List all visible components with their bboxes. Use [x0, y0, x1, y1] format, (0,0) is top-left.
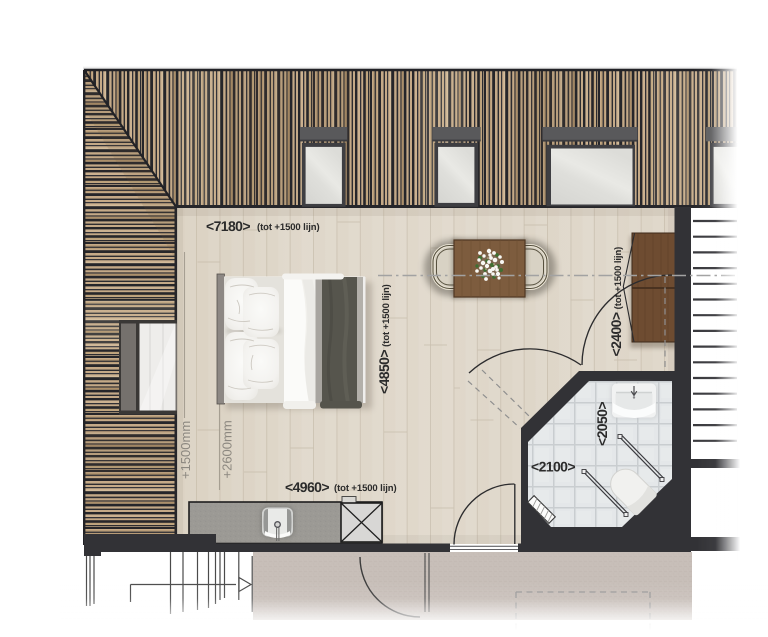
svg-text:<2050>: <2050> — [594, 402, 610, 446]
svg-text:<2100>: <2100> — [531, 459, 575, 475]
svg-text:<7180>: <7180> — [206, 218, 250, 234]
svg-text:(tot +1500 lijn): (tot +1500 lijn) — [334, 483, 397, 494]
svg-text:+2600mm: +2600mm — [220, 420, 235, 478]
svg-text:+1500mm: +1500mm — [178, 421, 193, 479]
svg-text:(tot +1500 lijn): (tot +1500 lijn) — [257, 222, 320, 233]
svg-text:<4960>: <4960> — [285, 479, 329, 495]
